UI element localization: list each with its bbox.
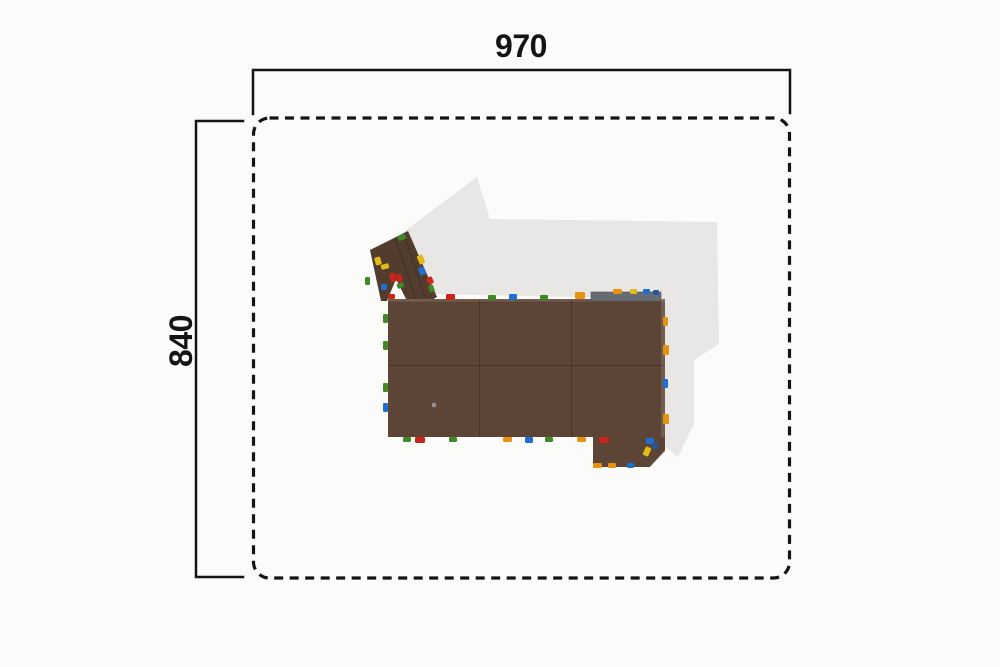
width-dimension-line — [253, 70, 790, 114]
main-deck-body — [388, 299, 665, 437]
climbing-hold-orange — [613, 289, 622, 294]
climbing-hold-blue — [643, 289, 650, 294]
climbing-hold-navy — [653, 290, 659, 295]
climbing-hold-blue — [525, 437, 533, 443]
climbing-hold-blue — [627, 463, 634, 468]
climbing-hold-blue — [663, 379, 668, 388]
climbing-hold-green — [365, 277, 370, 285]
climbing-hold-blue — [383, 403, 388, 412]
height-dimension-label: 840 — [163, 315, 199, 367]
climbing-hold-orange — [593, 463, 602, 468]
climbing-hold-navy — [652, 443, 658, 449]
climbing-hold-red — [446, 294, 455, 300]
climbing-hold-green — [545, 437, 553, 442]
climbing-hold-blue — [381, 284, 387, 290]
climbing-hold-green — [403, 437, 411, 442]
climbing-hold-orange — [577, 437, 586, 442]
width-dimension-label: 970 — [495, 28, 547, 64]
height-dimension: 840 — [163, 121, 243, 577]
climbing-hold-orange — [608, 463, 616, 468]
climbing-hold-blue — [509, 294, 517, 300]
climbing-hold-orange — [663, 414, 669, 424]
height-dimension-line — [196, 121, 243, 577]
climbing-hold-orange — [503, 437, 512, 442]
climbing-hold-green — [488, 295, 496, 300]
climbing-hold-orange — [575, 292, 585, 299]
width-dimension: 970 — [253, 28, 790, 114]
climbing-hold-green — [383, 314, 388, 323]
climbing-hold-green — [540, 295, 548, 300]
main-deck — [388, 299, 665, 437]
plan-view-diagram: 970 840 — [0, 0, 1000, 667]
fastener-inner — [433, 404, 435, 406]
climbing-hold-red — [388, 294, 395, 299]
climbing-hold-red — [599, 437, 609, 443]
deck-fastener-dot — [432, 403, 437, 408]
climbing-hold-orange — [663, 317, 668, 326]
climbing-hold-green — [449, 437, 457, 442]
climbing-hold-green — [383, 383, 388, 392]
climbing-hold-red — [415, 437, 425, 443]
climbing-hold-yellow — [630, 289, 637, 294]
gray-platform — [591, 292, 661, 301]
diagram-canvas: 970 840 — [0, 0, 1000, 667]
climbing-hold-orange — [663, 345, 669, 355]
climbing-hold-green — [383, 341, 388, 350]
